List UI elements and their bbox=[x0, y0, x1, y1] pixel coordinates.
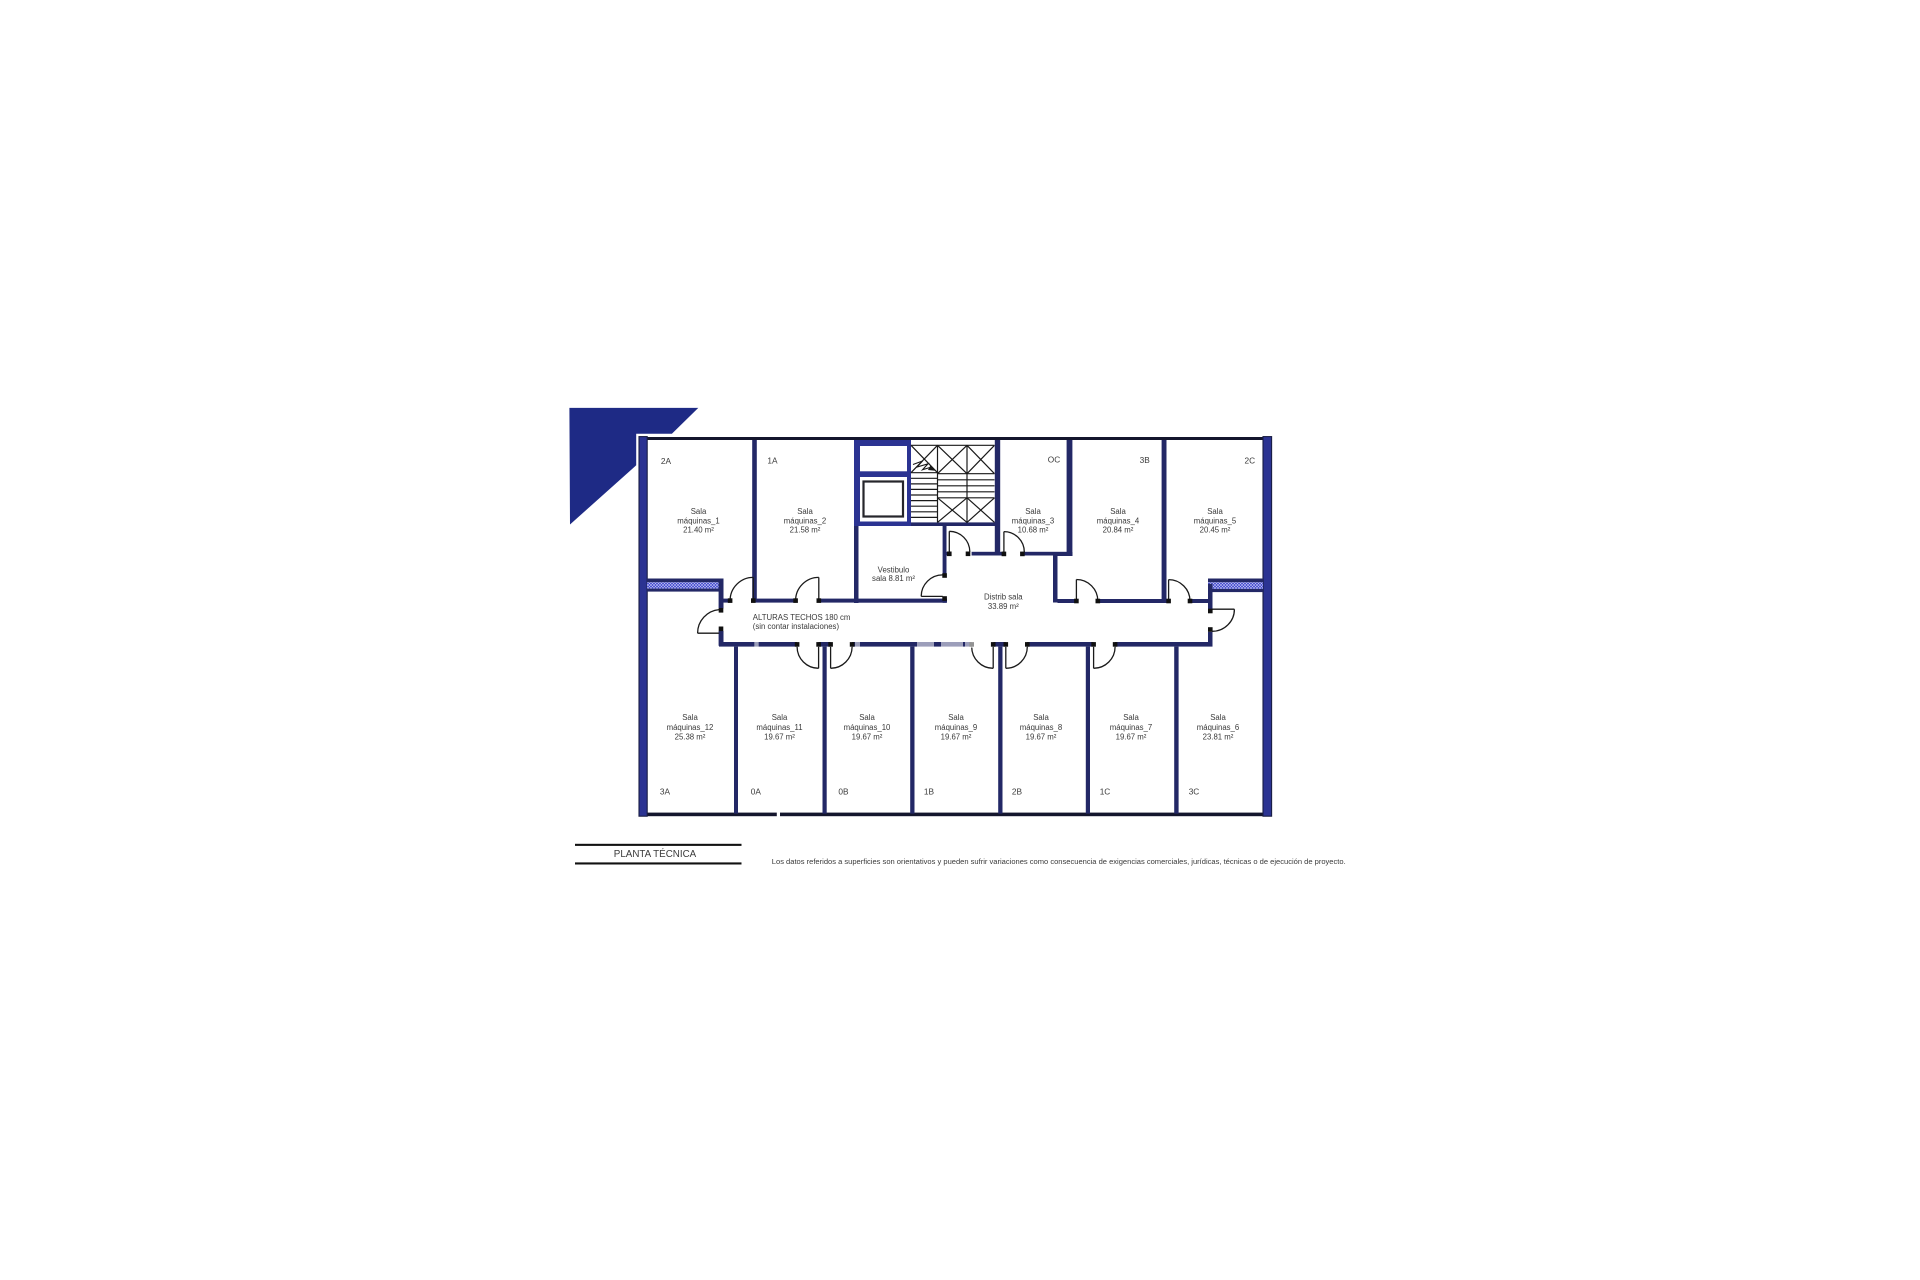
svg-text:máquinas_10: máquinas_10 bbox=[844, 723, 891, 732]
svg-text:2B: 2B bbox=[1012, 786, 1023, 796]
svg-text:25.38 m²: 25.38 m² bbox=[675, 732, 706, 741]
svg-text:Sala: Sala bbox=[859, 713, 875, 722]
svg-text:1A: 1A bbox=[767, 455, 778, 465]
svg-text:Sala: Sala bbox=[1123, 713, 1139, 722]
svg-text:Los datos referidos a superfic: Los datos referidos a superficies son or… bbox=[772, 857, 1346, 866]
svg-text:Distrib sala: Distrib sala bbox=[984, 592, 1023, 601]
svg-text:Sala: Sala bbox=[948, 713, 964, 722]
svg-text:10.68 m²: 10.68 m² bbox=[1018, 525, 1049, 534]
svg-text:3B: 3B bbox=[1140, 455, 1151, 465]
svg-text:0A: 0A bbox=[751, 786, 762, 796]
svg-text:Sala: Sala bbox=[1033, 713, 1049, 722]
svg-text:máquinas_4: máquinas_4 bbox=[1097, 516, 1140, 525]
svg-text:3A: 3A bbox=[660, 786, 671, 796]
svg-text:23.81 m²: 23.81 m² bbox=[1203, 732, 1234, 741]
svg-text:máquinas_7: máquinas_7 bbox=[1110, 723, 1152, 732]
svg-text:19.67 m²: 19.67 m² bbox=[764, 732, 795, 741]
svg-text:máquinas_12: máquinas_12 bbox=[667, 723, 714, 732]
svg-text:0B: 0B bbox=[838, 786, 849, 796]
svg-text:19.67 m²: 19.67 m² bbox=[1116, 732, 1147, 741]
svg-text:máquinas_8: máquinas_8 bbox=[1020, 723, 1062, 732]
svg-text:Sala: Sala bbox=[797, 507, 813, 516]
svg-text:máquinas_3: máquinas_3 bbox=[1012, 516, 1054, 525]
svg-text:máquinas_1: máquinas_1 bbox=[677, 516, 719, 525]
svg-text:3C: 3C bbox=[1189, 786, 1200, 796]
svg-text:máquinas_5: máquinas_5 bbox=[1194, 516, 1237, 525]
svg-text:1B: 1B bbox=[924, 786, 935, 796]
svg-text:OC: OC bbox=[1048, 454, 1060, 464]
svg-text:20.45 m²: 20.45 m² bbox=[1200, 525, 1231, 534]
svg-text:Sala: Sala bbox=[1025, 507, 1041, 516]
svg-text:(sin contar instalaciones): (sin contar instalaciones) bbox=[753, 622, 840, 631]
svg-text:21.58 m²: 21.58 m² bbox=[790, 525, 821, 534]
svg-text:ALTURAS TECHOS 180 cm: ALTURAS TECHOS 180 cm bbox=[753, 613, 851, 622]
svg-text:1C: 1C bbox=[1100, 786, 1111, 796]
svg-text:19.67 m²: 19.67 m² bbox=[852, 732, 883, 741]
svg-text:Sala: Sala bbox=[1210, 713, 1226, 722]
svg-text:Sala: Sala bbox=[1110, 507, 1126, 516]
svg-text:máquinas_2: máquinas_2 bbox=[784, 516, 826, 525]
svg-text:sala 8.81 m²: sala 8.81 m² bbox=[872, 574, 915, 583]
svg-text:máquinas_9: máquinas_9 bbox=[935, 723, 977, 732]
svg-text:33.89 m²: 33.89 m² bbox=[988, 602, 1019, 611]
svg-text:19.67 m²: 19.67 m² bbox=[1026, 732, 1057, 741]
svg-text:19.67 m²: 19.67 m² bbox=[941, 732, 972, 741]
svg-text:Sala: Sala bbox=[691, 507, 707, 516]
svg-text:Sala: Sala bbox=[682, 713, 698, 722]
svg-text:máquinas_11: máquinas_11 bbox=[756, 723, 802, 732]
svg-text:2C: 2C bbox=[1244, 456, 1255, 466]
svg-text:21.40 m²: 21.40 m² bbox=[683, 525, 714, 534]
svg-text:Sala: Sala bbox=[1207, 507, 1223, 516]
svg-text:PLANTA TÉCNICA: PLANTA TÉCNICA bbox=[614, 849, 697, 860]
svg-text:20.84 m²: 20.84 m² bbox=[1103, 525, 1134, 534]
svg-text:Sala: Sala bbox=[772, 713, 788, 722]
svg-text:2A: 2A bbox=[661, 456, 672, 466]
svg-text:máquinas_6: máquinas_6 bbox=[1197, 723, 1239, 732]
